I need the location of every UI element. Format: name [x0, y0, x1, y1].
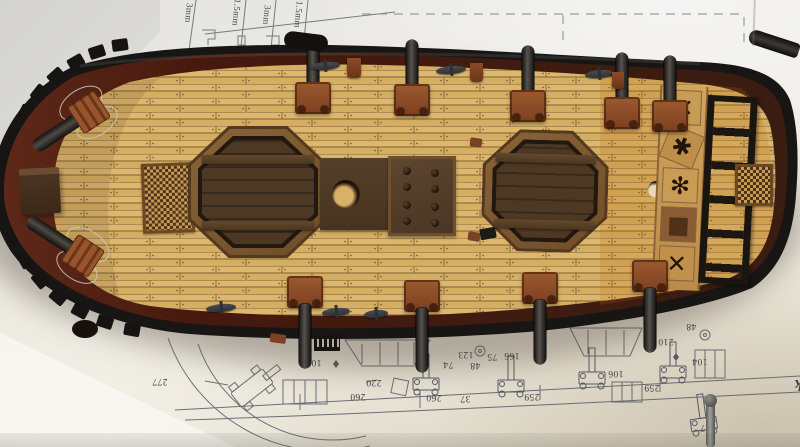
gun-carriage	[295, 82, 331, 114]
pinrail-comb	[314, 336, 340, 351]
bolt	[431, 169, 439, 177]
bolt	[403, 217, 411, 225]
cannon-barrel	[534, 300, 546, 364]
hatch-latch	[467, 231, 480, 242]
paper-sheet-edge	[0, 433, 800, 447]
kevel-cleat	[470, 63, 483, 82]
bolt	[431, 185, 439, 193]
stern-grating	[735, 164, 773, 206]
bolt	[431, 219, 439, 227]
hatch-beam	[202, 221, 314, 230]
bolt	[403, 167, 411, 175]
mast-hole	[332, 180, 360, 208]
hull-knob	[72, 320, 98, 338]
cannon-barrel	[644, 288, 656, 352]
cannon-barrel	[406, 40, 418, 88]
hatch-latch	[469, 137, 482, 148]
cannon-barrel	[299, 304, 311, 368]
cannon-barrel	[664, 56, 676, 104]
gun-carriage	[510, 90, 546, 122]
kevel-cleat	[347, 58, 361, 78]
carved-panel-motif: ✻	[661, 167, 698, 204]
bow-grating	[141, 162, 195, 234]
cannon-barrel	[416, 308, 428, 372]
gun-carriage	[394, 84, 430, 116]
bolt	[403, 183, 411, 191]
bolt	[431, 203, 439, 211]
carved-panel-motif: ■	[660, 206, 697, 243]
metal-pin-head	[704, 394, 717, 407]
main-hatch-octagon	[188, 126, 328, 258]
gun-carriage	[652, 100, 688, 132]
bolt	[403, 201, 411, 209]
hatch-beam	[202, 155, 314, 164]
gun-carriage	[604, 97, 640, 129]
cannon-barrel	[522, 46, 534, 94]
kevel-cleat	[612, 72, 624, 89]
photo-model-ship-on-plans: 3mm Ø1.5mm 3mm Ø1.5mm	[0, 0, 800, 447]
bolted-hatch	[388, 156, 456, 236]
